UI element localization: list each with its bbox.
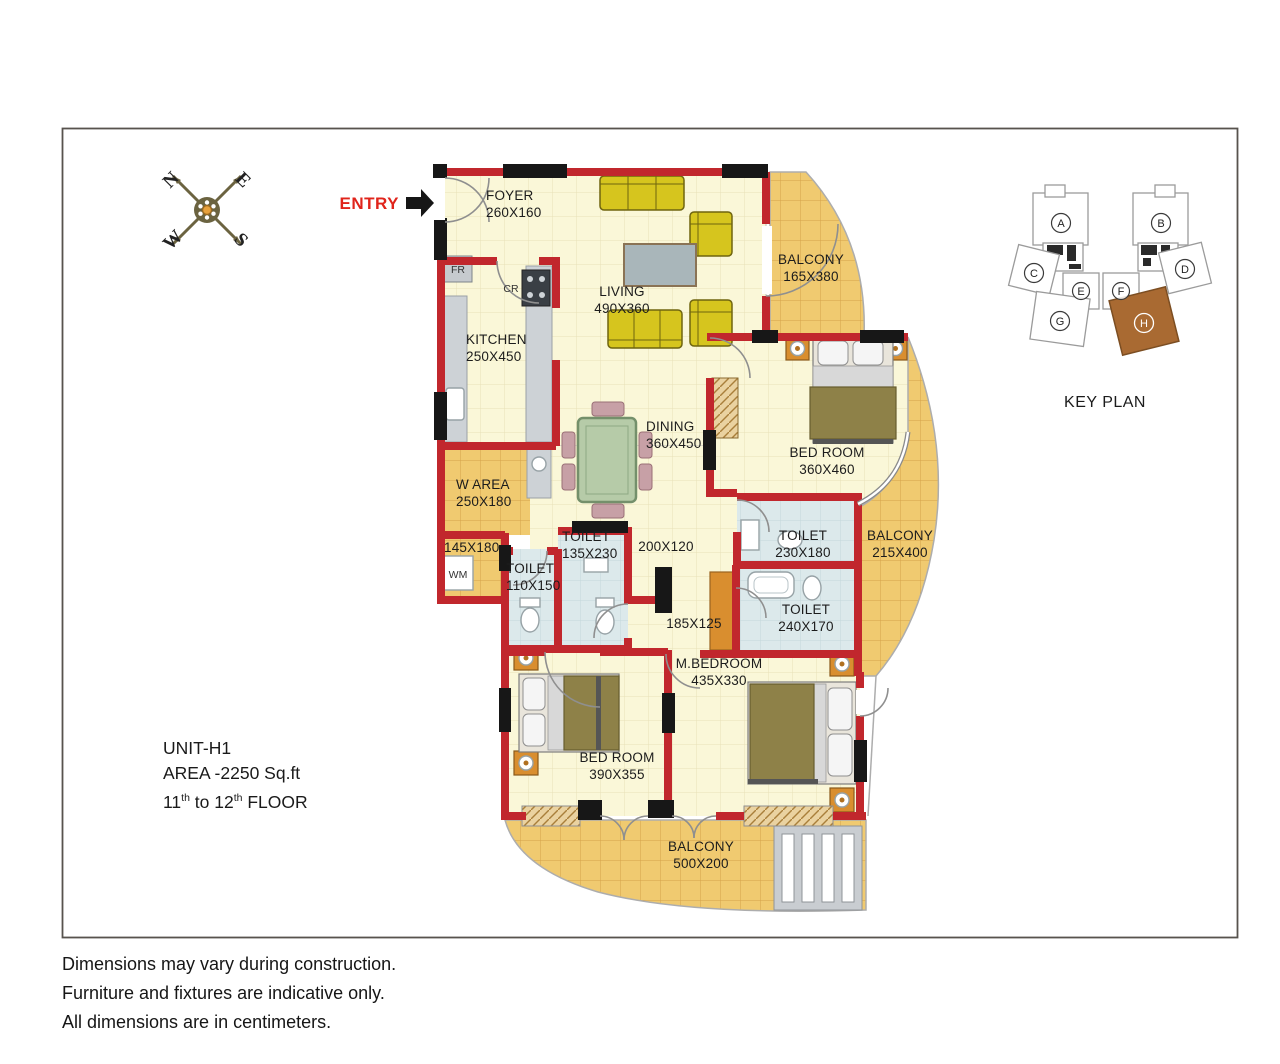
unit-floor: 11th to 12th FLOOR <box>163 786 308 815</box>
key-plan-block-c: C <box>1030 268 1038 280</box>
compass-west: W <box>159 226 187 254</box>
label-living: LIVING <box>599 284 644 299</box>
dims-dining: 360X450 <box>646 436 701 451</box>
unit-info: UNIT-H1 AREA -2250 Sq.ft 11th to 12th FL… <box>163 736 308 815</box>
dims-kitchen: 250X450 <box>466 349 521 364</box>
key-plan-title: KEY PLAN <box>1064 394 1146 411</box>
window-grill <box>744 806 833 826</box>
key-plan-block-e: E <box>1077 286 1084 298</box>
dims-passage-master: 185X125 <box>666 616 721 631</box>
floorplan-page: FOYER 260X160 LIVING 490X360 KITCHEN 250… <box>0 0 1280 1064</box>
dims-utility: 145X180 <box>444 540 499 555</box>
key-plan-block-d: D <box>1181 264 1189 276</box>
unit-area: AREA -2250 Sq.ft <box>163 761 308 786</box>
key-plan-block-g: G <box>1056 316 1065 328</box>
key-plan-block-a: A <box>1057 218 1065 230</box>
footer-line-1: Dimensions may vary during construction. <box>62 950 396 979</box>
label-cooking-range: CR <box>503 283 519 295</box>
label-toilet-small: TOILET <box>506 561 554 576</box>
dims-toilet-small: 110X150 <box>506 578 560 593</box>
key-plan-block-h: H <box>1140 318 1148 330</box>
label-master-bedroom: M.BEDROOM <box>676 656 763 671</box>
wardrobe <box>712 378 738 438</box>
entry-marker: ENTRY <box>340 189 435 217</box>
label-bedroom-right: BED ROOM <box>789 445 864 460</box>
dims-living: 490X360 <box>594 301 649 316</box>
dims-passage: 200X120 <box>638 539 693 554</box>
footer-notes: Dimensions may vary during construction.… <box>62 950 396 1037</box>
dims-bedroom-right: 360X460 <box>799 462 854 477</box>
dims-balcony-right: 215X400 <box>872 545 927 560</box>
label-dining: DINING <box>646 419 694 434</box>
label-foyer: FOYER <box>486 188 534 203</box>
dims-bedroom-bottom: 390X355 <box>589 767 644 782</box>
compass-south: S <box>230 229 252 251</box>
unit-name: UNIT-H1 <box>163 736 308 761</box>
label-w-area: W AREA <box>456 477 510 492</box>
label-balcony-bottom: BALCONY <box>668 839 734 854</box>
footer-line-3: All dimensions are in centimeters. <box>62 1008 396 1037</box>
dims-toilet-mid: 135X230 <box>562 546 617 561</box>
dims-toilet-right: 230X180 <box>775 545 830 560</box>
balcony-bottom-vent <box>774 826 862 910</box>
key-plan-block-f: F <box>1118 286 1125 298</box>
footer-line-2: Furniture and fixtures are indicative on… <box>62 979 396 1008</box>
dims-master-bedroom: 435X330 <box>691 673 746 688</box>
label-kitchen: KITCHEN <box>466 332 527 347</box>
label-toilet-master: TOILET <box>782 602 830 617</box>
wardrobe <box>710 572 734 650</box>
compass-north: N <box>159 168 184 193</box>
label-fridge: FR <box>451 264 465 276</box>
label-balcony-right: BALCONY <box>867 528 933 543</box>
compass-east: E <box>231 168 255 192</box>
dims-w-area: 250X180 <box>456 494 511 509</box>
floorplan-canvas: FOYER 260X160 LIVING 490X360 KITCHEN 250… <box>0 0 1280 1064</box>
label-balcony-top: BALCONY <box>778 252 844 267</box>
label-bedroom-bottom: BED ROOM <box>579 750 654 765</box>
dims-balcony-bottom: 500X200 <box>673 856 728 871</box>
label-toilet-mid: TOILET <box>562 529 610 544</box>
window-grill <box>522 806 580 826</box>
dims-balcony-top: 165X380 <box>783 269 838 284</box>
label-toilet-right: TOILET <box>779 528 827 543</box>
entry-arrow-icon <box>406 189 434 217</box>
key-plan-block-b: B <box>1157 218 1164 230</box>
key-plan: A B C D E F G H KEY PLAN <box>1009 185 1212 411</box>
label-washing-machine: WM <box>449 569 468 581</box>
dims-toilet-master: 240X170 <box>778 619 833 634</box>
dims-foyer: 260X160 <box>486 205 541 220</box>
entry-label: ENTRY <box>340 194 400 213</box>
compass-icon: N E W S <box>159 168 255 255</box>
